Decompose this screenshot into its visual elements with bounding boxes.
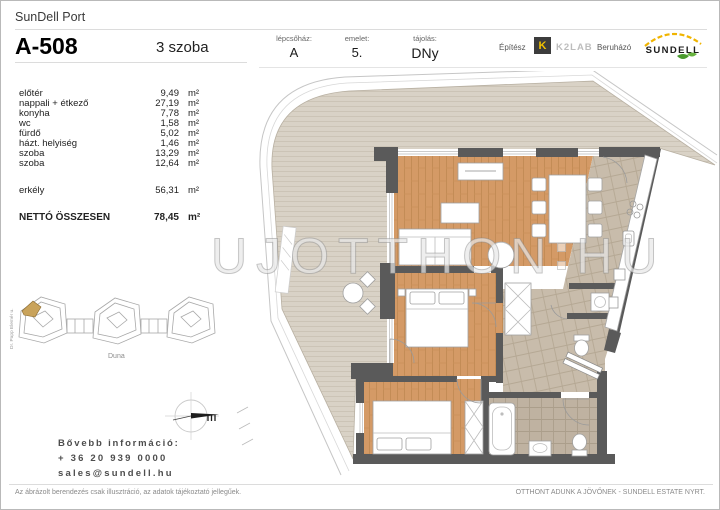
dining-table [549, 175, 586, 243]
site-river-label: Duna [108, 353, 125, 360]
contact-phone[interactable]: + 36 20 939 0000 [58, 453, 180, 464]
balcony-table [343, 283, 363, 303]
area-table: előtér9,49m² nappali + étkező27,19m² kon… [19, 89, 211, 223]
floor-plan [229, 71, 719, 481]
hall-wardrobe [505, 283, 531, 335]
area-row-balcony: erkély56,31m² [19, 186, 211, 196]
contact-email[interactable]: sales@sundell.hu [58, 468, 180, 479]
staircase-label: lépcsőház: [259, 34, 329, 43]
architect-label: Építész [499, 43, 526, 52]
floor-label: emelet: [327, 34, 387, 43]
wardrobe [465, 401, 483, 454]
floorplan-sheet: SunDell Port A-508 3 szoba lépcsőház: A … [0, 0, 720, 510]
unit-type: 3 szoba [156, 39, 209, 56]
orientation-value: DNy [389, 45, 461, 61]
washing-machine [591, 293, 609, 311]
kitchen-sink-icon [623, 231, 634, 246]
sundell-logo: SUNDELL [637, 29, 709, 63]
unit-id: A-508 [15, 33, 78, 60]
area-row-total: NETTÓ ÖSSZESEN78,45m² [19, 213, 211, 223]
area-row: szoba13,29m² [19, 149, 211, 159]
developer-label: Beruházó [597, 43, 631, 52]
area-row: wc1,58m² [19, 119, 211, 129]
floor-value: 5. [327, 45, 387, 60]
contact-block: Bővebb információ: + 36 20 939 0000 sale… [58, 438, 180, 479]
staircase-value: A [259, 45, 329, 60]
orientation-label: tájolás: [389, 34, 461, 43]
header-divider [15, 29, 707, 30]
coffee-table [441, 203, 479, 223]
staircase-group: lépcsőház: A [259, 34, 329, 60]
site-street-label: Dr. Papp Elemér u. [9, 308, 15, 349]
toilet [572, 450, 587, 456]
orientation-group: tájolás: DNy [389, 34, 461, 61]
k2lab-mark: K [539, 40, 547, 52]
footer-disclaimer: Az ábrázolt berendezés csak illusztráció… [15, 489, 241, 496]
footer-divider [9, 484, 713, 485]
area-row: konyha7,78m² [19, 109, 211, 119]
area-row: szoba12,64m² [19, 159, 211, 169]
project-title: SunDell Port [15, 10, 85, 24]
footer-slogan: OTTHONT ADUNK A JÖVŐNEK - SUNDELL ESTATE… [516, 489, 705, 496]
compass-icon [161, 389, 223, 445]
meta-divider [259, 67, 707, 68]
floor-group: emelet: 5. [327, 34, 387, 60]
k2lab-logo-text: K2LAB [556, 42, 593, 53]
contact-title: Bővebb információ: [58, 438, 180, 449]
sideboard [458, 163, 503, 180]
unit-divider [15, 62, 247, 63]
k2lab-logo-icon: K [534, 37, 551, 54]
site-plan: Duna Dr. Papp Elemér u. [7, 291, 229, 367]
area-row: házt. helyiség1,46m² [19, 139, 211, 149]
site-buildings [19, 297, 215, 344]
